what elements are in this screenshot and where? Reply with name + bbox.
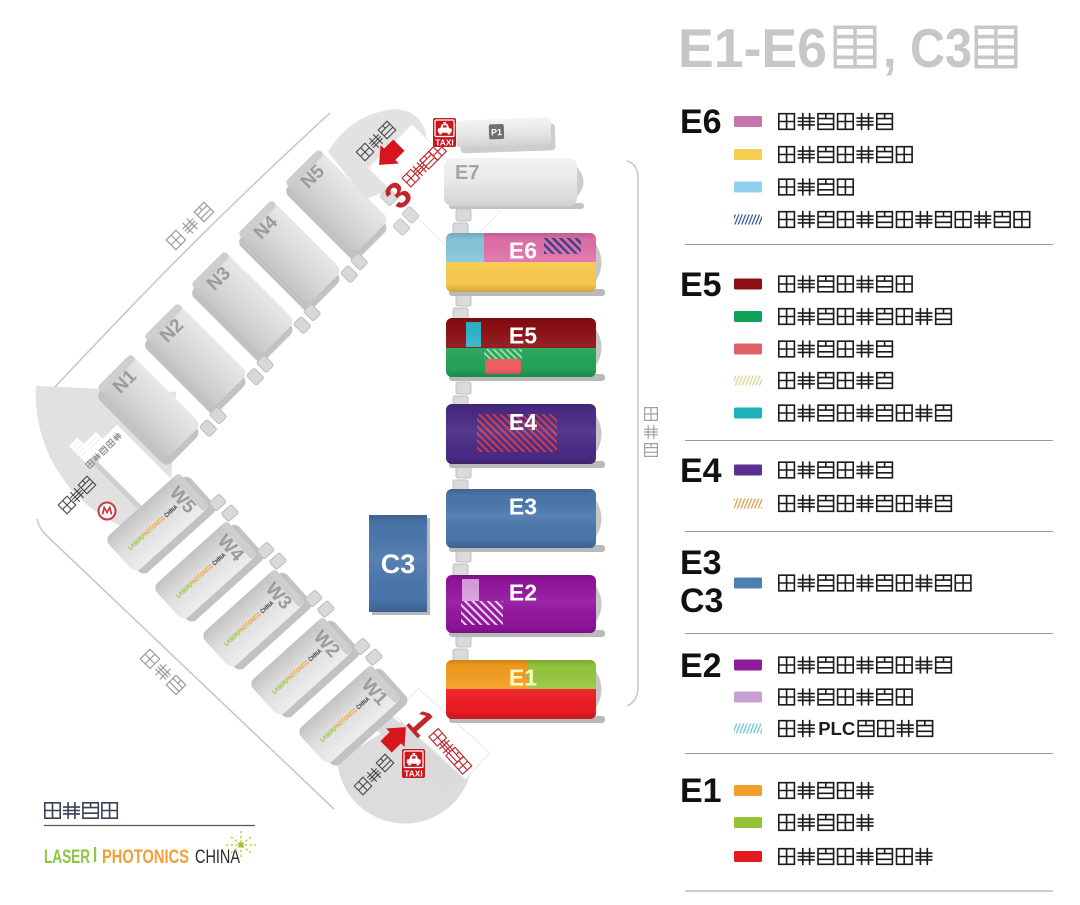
svg-text:E4: E4 — [509, 409, 537, 435]
svg-text:E7: E7 — [455, 162, 479, 184]
svg-text:PLC: PLC — [818, 718, 855, 739]
svg-text:E5: E5 — [680, 266, 722, 304]
svg-text:PHOTONICS: PHOTONICS — [102, 847, 189, 868]
svg-text:E3: E3 — [509, 494, 537, 520]
svg-text:E2: E2 — [509, 579, 537, 605]
svg-text:E6: E6 — [680, 103, 722, 141]
svg-text:E3: E3 — [680, 544, 722, 582]
svg-text:, C3: , C3 — [883, 17, 972, 79]
svg-text:E1: E1 — [680, 772, 722, 810]
svg-text:LASER: LASER — [44, 847, 90, 868]
svg-text:E2: E2 — [680, 647, 722, 685]
svg-text:C3: C3 — [381, 549, 416, 579]
svg-text:E1: E1 — [509, 665, 537, 691]
svg-text:TAXI: TAXI — [435, 138, 453, 148]
svg-text:TAXI: TAXI — [404, 769, 422, 779]
svg-text:P1: P1 — [491, 127, 502, 137]
svg-text:E1-E6: E1-E6 — [678, 17, 827, 79]
svg-text:E5: E5 — [509, 323, 537, 349]
svg-text:E4: E4 — [680, 452, 722, 490]
svg-text:E6: E6 — [509, 238, 537, 264]
svg-text:CHINA: CHINA — [195, 847, 240, 868]
svg-text:C3: C3 — [680, 582, 723, 620]
